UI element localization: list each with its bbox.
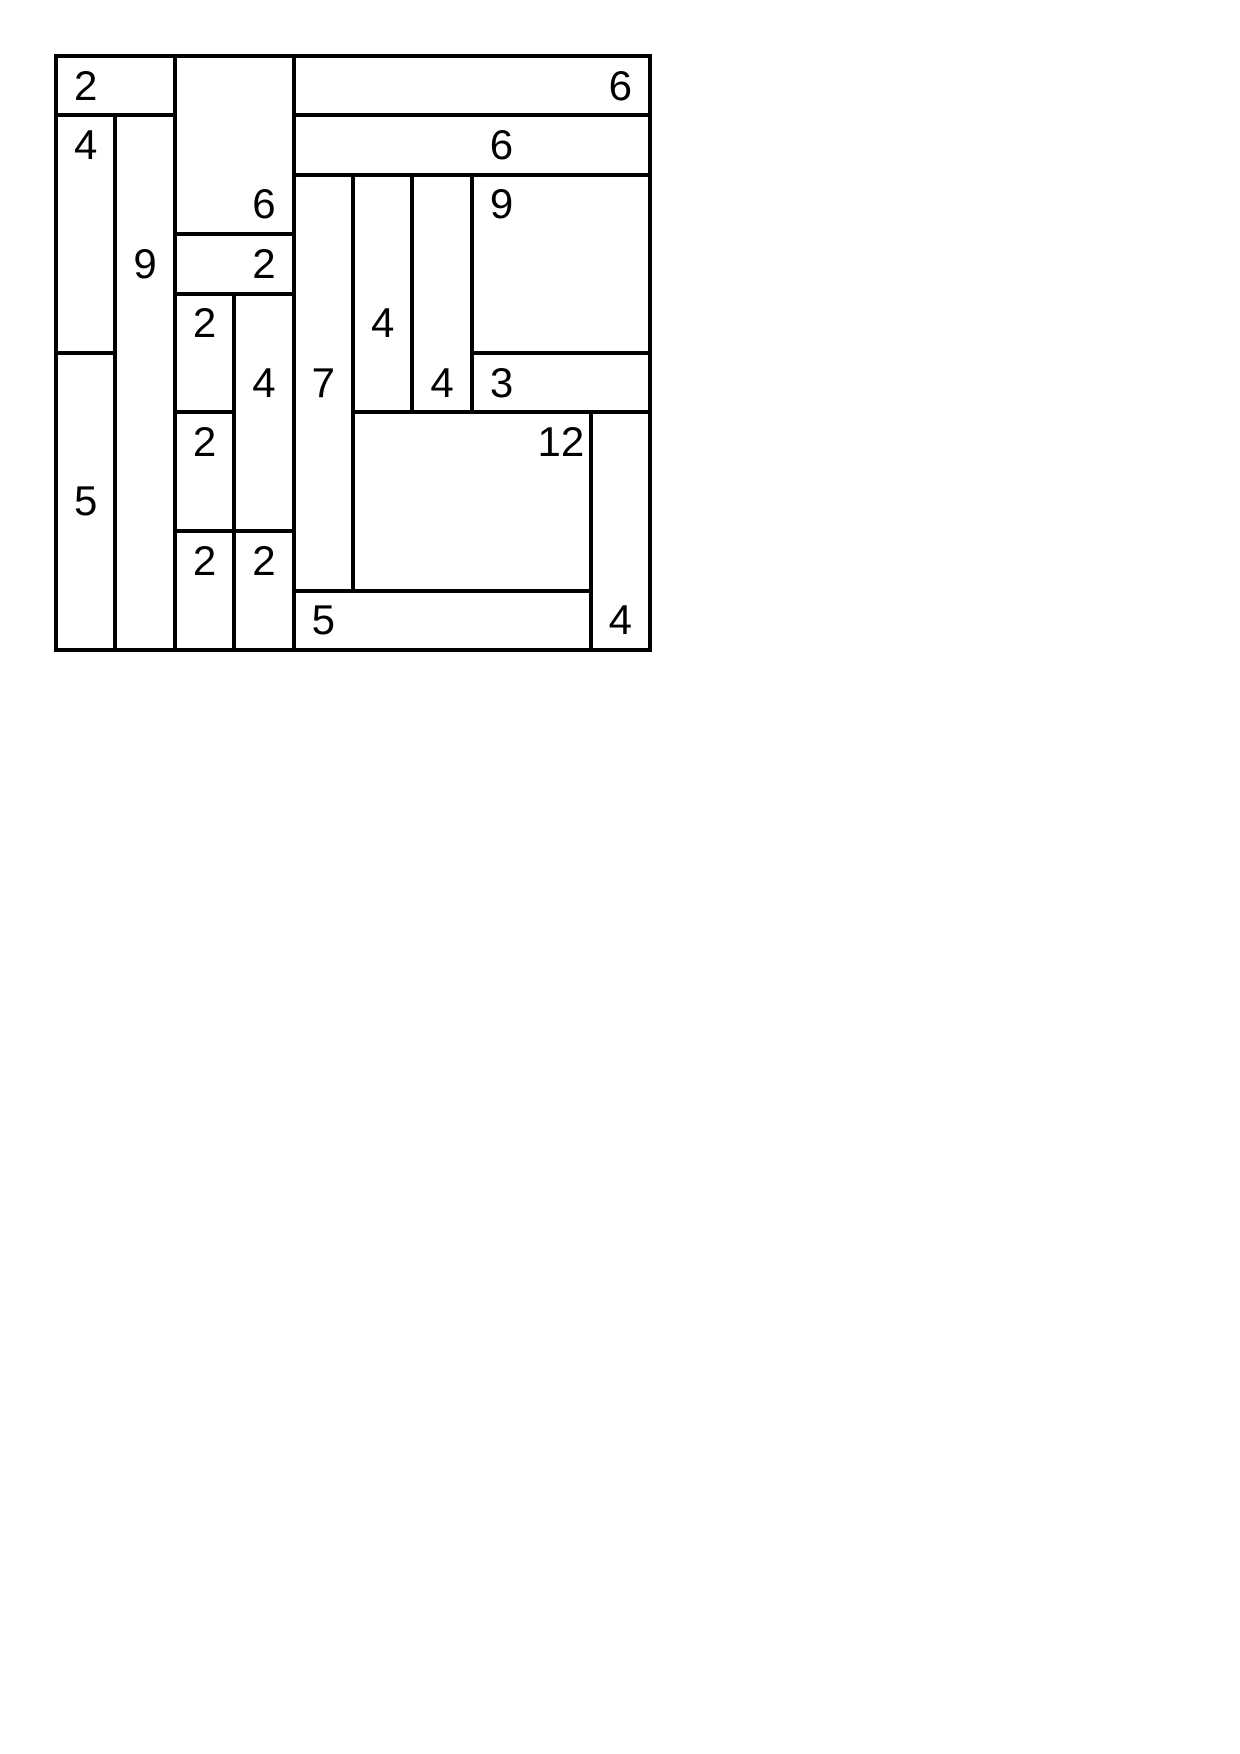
region-area-label: 3: [472, 353, 531, 412]
puzzle-board: 2664969224744312452225: [54, 54, 652, 652]
region-area-label: 6: [472, 115, 531, 174]
region-area-label: 4: [353, 294, 412, 353]
region-area-label: 9: [472, 175, 531, 234]
puzzle-region[interactable]: 3: [472, 353, 650, 412]
region-area-label: 4: [412, 353, 471, 412]
puzzle-region[interactable]: 6: [294, 115, 650, 174]
puzzle-region[interactable]: 4: [412, 175, 471, 413]
puzzle-region[interactable]: 9: [472, 175, 650, 353]
region-area-label: 4: [56, 115, 115, 174]
region-area-label: 6: [234, 175, 293, 234]
puzzle-region[interactable]: 4: [591, 412, 650, 650]
region-area-label: 9: [115, 234, 174, 293]
region-area-label: 2: [175, 412, 234, 471]
region-area-label: 2: [234, 531, 293, 590]
region-area-label: 7: [294, 353, 353, 412]
region-area-label: 2: [175, 531, 234, 590]
puzzle-region[interactable]: 4: [234, 294, 293, 532]
puzzle-region[interactable]: 2: [234, 531, 293, 650]
puzzle-region[interactable]: 5: [56, 353, 115, 650]
puzzle-region[interactable]: 6: [294, 56, 650, 115]
puzzle-region[interactable]: 2: [175, 412, 234, 531]
region-area-label: 4: [234, 353, 293, 412]
region-area-label: 2: [175, 294, 234, 353]
puzzle-region[interactable]: 2: [175, 294, 234, 413]
puzzle-region[interactable]: 12: [353, 412, 591, 590]
puzzle-region[interactable]: 9: [115, 115, 174, 650]
puzzle-page: 2664969224744312452225: [0, 0, 1240, 1754]
puzzle-region[interactable]: 6: [175, 56, 294, 234]
puzzle-region[interactable]: 2: [175, 531, 234, 650]
puzzle-region[interactable]: 5: [294, 591, 591, 650]
region-area-label: 4: [591, 591, 650, 650]
region-area-label: 5: [294, 591, 353, 650]
region-area-label: 5: [56, 472, 115, 531]
region-area-label: 2: [56, 56, 115, 115]
puzzle-region[interactable]: 4: [353, 175, 412, 413]
puzzle-region[interactable]: 2: [56, 56, 175, 115]
puzzle-region[interactable]: 2: [175, 234, 294, 293]
puzzle-region[interactable]: 4: [56, 115, 115, 353]
region-area-label: 6: [591, 56, 650, 115]
puzzle-region[interactable]: 7: [294, 175, 353, 591]
region-area-label: 12: [531, 412, 590, 471]
region-area-label: 2: [234, 234, 293, 293]
